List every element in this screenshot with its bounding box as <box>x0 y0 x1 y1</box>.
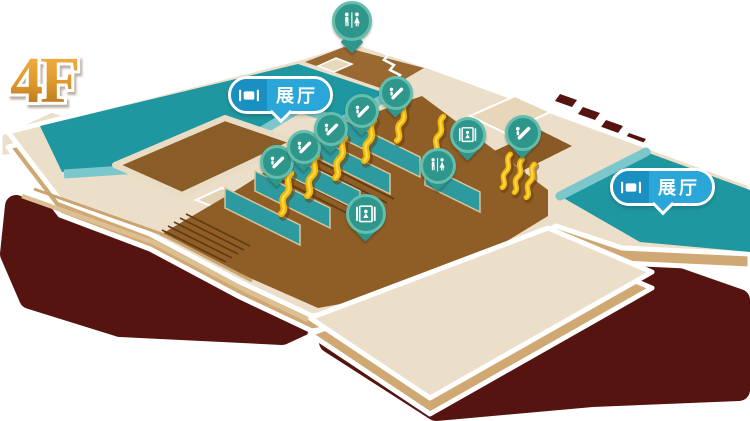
escalator-marker <box>345 94 379 128</box>
floor-guide-page: 4F 展厅 展厅 <box>0 0 750 421</box>
elevator-marker <box>346 194 386 234</box>
marker-circle <box>505 115 541 151</box>
escalator-marker <box>314 112 348 146</box>
exhibit-hall-icon <box>231 79 267 111</box>
marker-circle <box>379 76 413 110</box>
restroom-marker <box>420 148 456 184</box>
escalator-marker <box>379 76 413 110</box>
exhibit-hall-icon <box>613 171 649 203</box>
marker-circle <box>345 94 379 128</box>
floor-label-text: 4F <box>10 44 78 117</box>
marker-circle <box>314 112 348 146</box>
marker-circle <box>346 194 386 234</box>
escalator-marker <box>505 115 541 151</box>
floor-label: 4F <box>2 30 122 125</box>
exhibit-hall-badge-right[interactable]: 展厅 <box>610 168 715 206</box>
exhibit-hall-badge-left[interactable]: 展厅 <box>228 76 333 114</box>
marker-circle <box>420 148 456 184</box>
marker-circle <box>332 1 372 41</box>
restroom-marker <box>332 1 372 41</box>
